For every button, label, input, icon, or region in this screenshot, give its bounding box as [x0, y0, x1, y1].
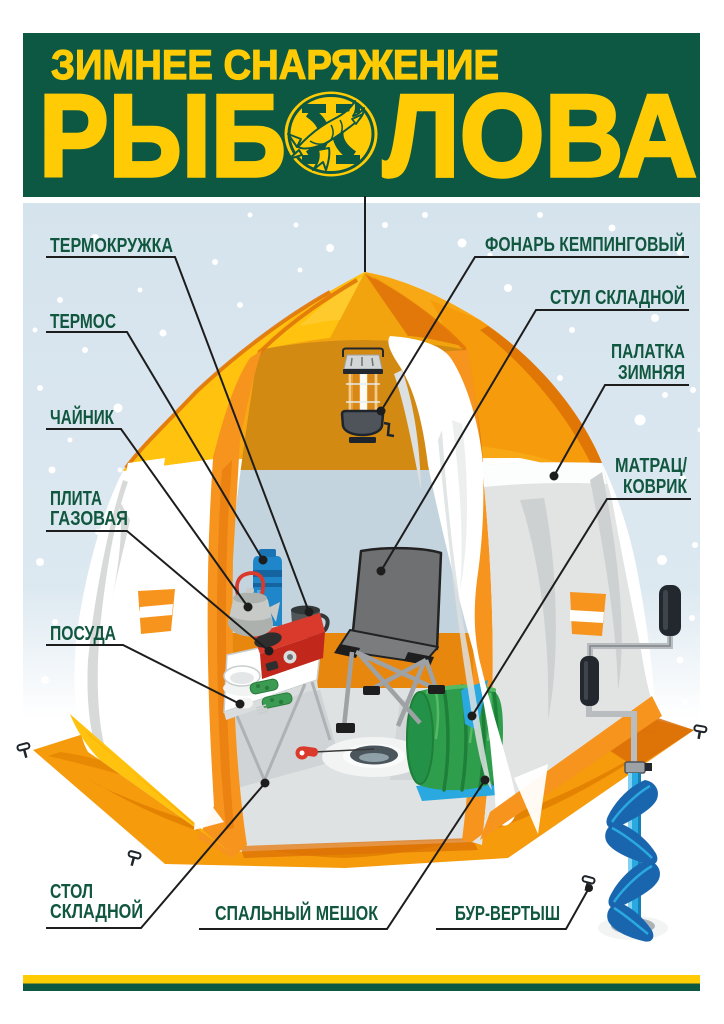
svg-text:ФОНАРЬ КЕМПИНГОВЫЙ: ФОНАРЬ КЕМПИНГОВЫЙ [485, 232, 685, 256]
svg-text:ПЛИТА: ПЛИТА [50, 488, 102, 510]
svg-text:КОВРИК: КОВРИК [623, 476, 688, 498]
svg-text:МАТРАЦ/: МАТРАЦ/ [615, 455, 687, 477]
svg-text:ГАЗОВАЯ: ГАЗОВАЯ [50, 508, 128, 530]
svg-text:ТЕРМОС: ТЕРМОС [50, 311, 116, 333]
svg-text:РЫБ: РЫБ [39, 70, 286, 201]
svg-text:ЛОВА: ЛОВА [383, 70, 697, 201]
svg-text:ПАЛАТКА: ПАЛАТКА [611, 341, 685, 363]
svg-text:ПОСУДА: ПОСУДА [50, 623, 116, 645]
svg-text:ЗИМНЯЯ: ЗИМНЯЯ [618, 362, 685, 384]
svg-text:СКЛАДНОЙ: СКЛАДНОЙ [50, 899, 143, 923]
svg-text:СТОЛ: СТОЛ [50, 881, 93, 903]
svg-text:СПАЛЬНЫЙ МЕШОК: СПАЛЬНЫЙ МЕШОК [215, 901, 379, 925]
svg-text:СТУЛ СКЛАДНОЙ: СТУЛ СКЛАДНОЙ [550, 285, 685, 309]
svg-text:ТЕРМОКРУЖКА: ТЕРМОКРУЖКА [50, 235, 173, 257]
svg-text:ЧАЙНИК: ЧАЙНИК [50, 405, 115, 429]
svg-text:БУР-ВЕРТЫШ: БУР-ВЕРТЫШ [455, 903, 560, 925]
